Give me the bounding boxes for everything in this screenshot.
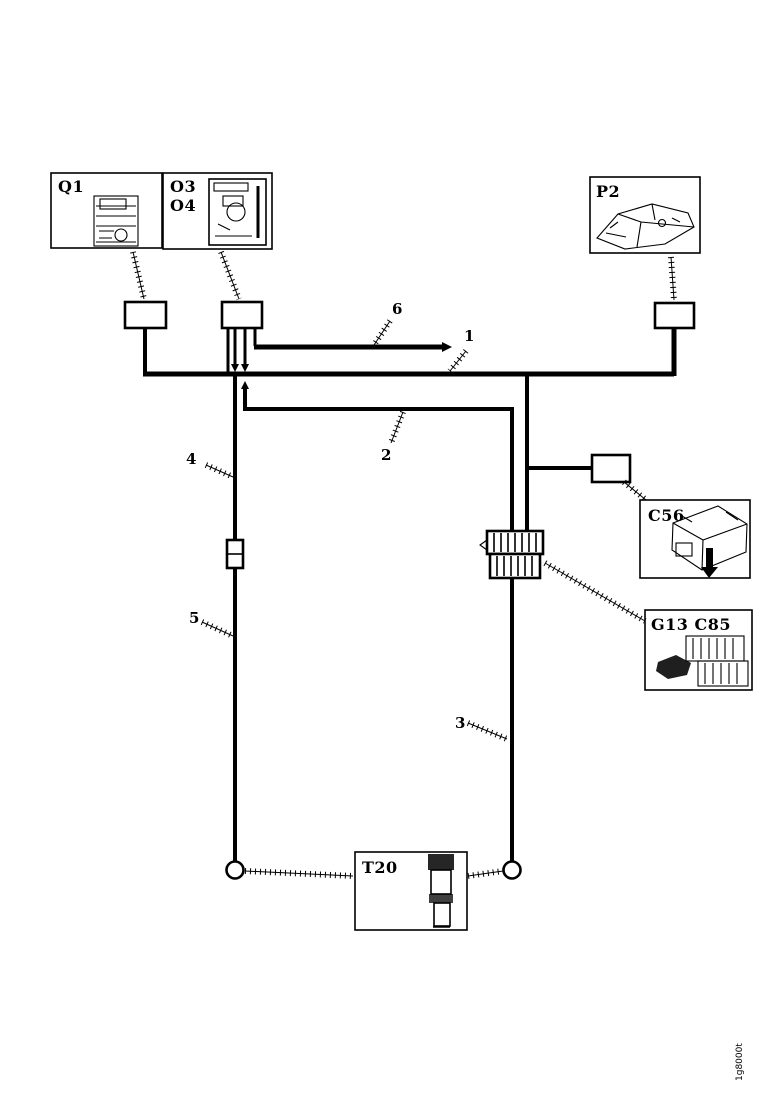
inline-connector <box>227 540 243 568</box>
arrowhead-pin3 <box>241 364 249 372</box>
leader-t20-right <box>468 871 503 876</box>
q1-illustration <box>94 196 138 246</box>
q1-connector <box>125 302 166 328</box>
leader-wire-4 <box>206 465 233 477</box>
c56-illustration <box>672 506 747 578</box>
t20-label: T20 <box>362 858 398 877</box>
leader-wire-1 <box>450 351 466 371</box>
p2-connector <box>655 303 694 328</box>
wire-2 <box>245 388 512 532</box>
t20-illustration <box>428 854 454 927</box>
arrowhead-pin2 <box>231 364 239 372</box>
component-t20: T20 <box>355 852 467 930</box>
component-o3o4: O3 O4 <box>163 173 272 249</box>
component-g13-c85: G13 C85 <box>645 610 752 690</box>
o4-label: O4 <box>170 196 196 215</box>
p2-label: P2 <box>596 182 620 201</box>
component-c56: C56 <box>640 500 750 578</box>
wire-label-5: 5 <box>189 609 199 627</box>
wiring-harness-diagram: Q1 O3 O4 P2 <box>0 0 783 1100</box>
wire-label-3: 3 <box>455 714 465 732</box>
terminal-ring-left <box>227 862 244 879</box>
o3-label: O3 <box>170 177 196 196</box>
c56-label: C56 <box>648 506 685 525</box>
o3o4-illustration <box>209 179 266 245</box>
leader-wire-6 <box>374 321 390 345</box>
arrowhead-wire-2 <box>241 381 249 389</box>
leader-c56 <box>624 482 646 500</box>
pin-block-connector <box>480 531 543 578</box>
wire-label-4: 4 <box>186 450 196 468</box>
arrowhead-wire-6 <box>442 342 452 352</box>
leader-q1 <box>133 252 144 299</box>
component-p2: P2 <box>590 177 700 253</box>
doc-code: 1g8000t <box>735 1043 745 1081</box>
p2-illustration <box>597 204 694 249</box>
connector-symbols <box>125 302 694 879</box>
leader-t20-left <box>245 871 353 876</box>
leader-o3o4 <box>221 252 239 299</box>
terminal-ring-right <box>504 862 521 879</box>
leader-wire-2 <box>391 412 403 443</box>
q1-label: Q1 <box>58 177 84 196</box>
wire-label-1: 1 <box>464 327 474 345</box>
leader-p2 <box>671 257 674 300</box>
component-q1: Q1 <box>51 173 162 248</box>
leader-wire-5 <box>202 622 233 636</box>
o3o4-connector <box>222 302 262 328</box>
leader-g13-c85 <box>545 563 645 621</box>
leader-wire-3 <box>468 723 507 739</box>
harness-wires <box>143 327 674 861</box>
g13-c85-label: G13 C85 <box>651 615 731 634</box>
wiring-diagram-page: Q1 O3 O4 P2 <box>0 0 783 1100</box>
c56-connector <box>592 455 630 482</box>
wire-label-6: 6 <box>392 300 402 318</box>
wire-label-2: 2 <box>381 446 391 464</box>
g13-c85-illustration <box>656 636 748 686</box>
